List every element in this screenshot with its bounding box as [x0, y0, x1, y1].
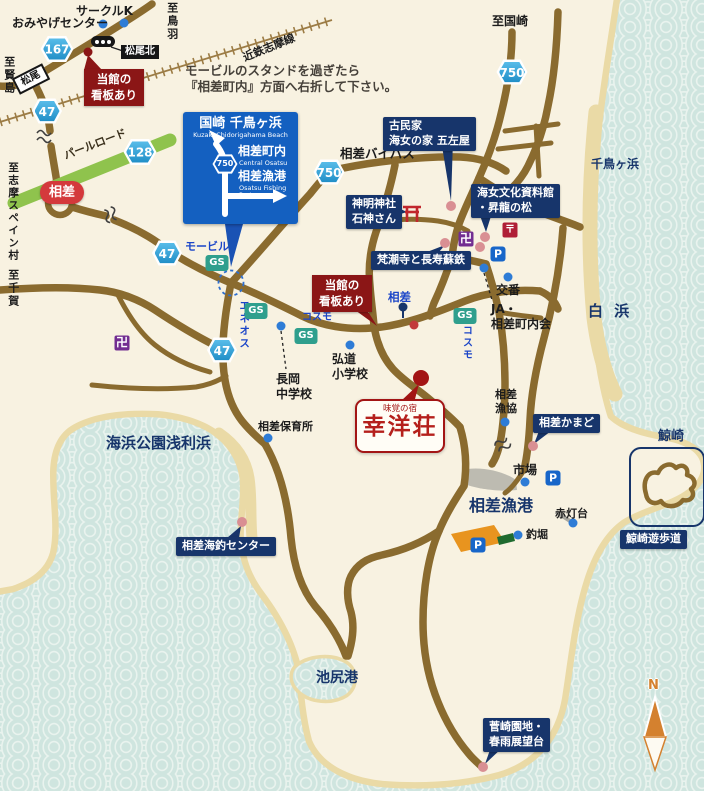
route-badge-128-number: 128: [126, 141, 154, 163]
route-badge-750-a-number: 750: [499, 62, 525, 83]
route-badge-750-b-number: 750: [316, 162, 342, 183]
temple-icon-town: 卍: [459, 232, 474, 247]
gs-badge-eneos: GS: [245, 303, 268, 319]
parking-icon-port: P: [471, 538, 486, 553]
callout-ama-museum: 海女文化資料館 ・昇龍の松: [471, 184, 560, 218]
traffic-signal-icon: [91, 36, 115, 47]
road-sign-arrow: [183, 112, 298, 224]
access-map: おみやげセンター サークルK 至鳥羽 至賢島 至国崎 近鉄志摩線 モービルのスタ…: [0, 0, 704, 791]
parking-icon-town: P: [491, 247, 506, 262]
post-office-icon: 〒: [503, 223, 518, 238]
street-spot-dot: [410, 321, 419, 330]
road-sign: 国崎 千鳥ヶ浜 Kuzaki Chidorigahama Beach 相差町内 …: [183, 112, 298, 224]
callout-signboard-north: 当館の 看板あり: [84, 69, 144, 106]
callout-signboard-town: 当館の 看板あり: [312, 275, 372, 312]
temple-icon-west: 卍: [115, 336, 130, 351]
parking-icon-ichiba: P: [546, 471, 561, 486]
callout-shinmei-jinja: 神明神社 石神さん: [346, 195, 402, 229]
compass-north-label: N: [648, 679, 659, 692]
whale-cape-outline: [629, 447, 704, 527]
inn-location-dot: [413, 370, 429, 386]
gs-badge-mobil: GS: [206, 255, 229, 271]
road-sign-route-number: 750: [215, 156, 236, 172]
signboard-spot-dot: [84, 48, 93, 57]
gs-badge-cosmo-east: GS: [454, 308, 477, 324]
map-canvas: [0, 0, 704, 791]
route-badge-47-b-number: 47: [155, 243, 180, 264]
callout-yuhodo: 鯨崎遊歩道: [620, 530, 687, 549]
badge-osatsu-ic: 相差: [40, 181, 84, 204]
callout-kamado: 相差かまど: [533, 414, 600, 433]
gs-badge-cosmo-west: GS: [295, 328, 318, 344]
callout-sugesaki: 菅崎園地・ 春雨展望台: [483, 718, 550, 752]
callout-tsuri-center: 相差海釣センター: [176, 537, 276, 556]
route-badge-47-a-number: 47: [35, 101, 60, 122]
ikejiri-cove: [293, 658, 354, 699]
callout-bonshoji: 梵潮寺と長寿蘇鉄: [371, 251, 471, 270]
matsuo-kita-box: 松尾北: [121, 45, 159, 59]
inn-name: 幸洋荘: [357, 414, 443, 439]
callout-gozaya: 古民家 海女の家 五左屋: [383, 117, 476, 151]
route-badge-167-number: 167: [43, 38, 71, 60]
route-badge-47-c-number: 47: [210, 340, 235, 361]
inn-callout: 味覚の宿 幸洋荘: [355, 399, 445, 453]
